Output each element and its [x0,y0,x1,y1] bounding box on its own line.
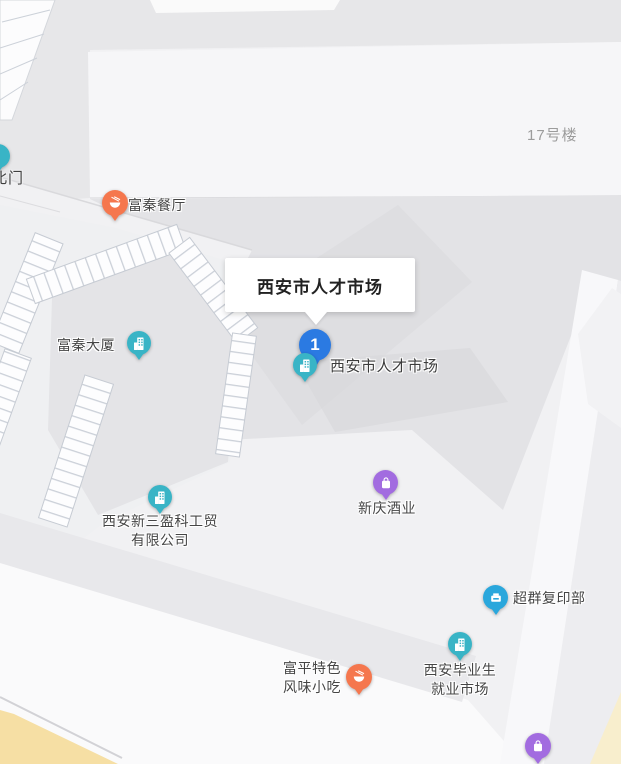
selected-result-label[interactable]: 西安市人才市场 [330,357,439,376]
building-pin-icon [448,632,472,656]
selected-poi-pin[interactable] [293,353,317,377]
shopping-bag-icon [379,476,393,490]
poi-label: 富秦大厦 [57,336,115,355]
copier-icon [489,591,503,605]
poi-label: 西安新三盈科工贸 有限公司 [95,512,225,550]
building-icon [132,336,146,350]
building-icon [153,490,167,504]
restaurant-pin-icon [346,664,372,690]
info-window-title: 西安市人才市场 [257,273,383,298]
map-canvas [0,0,621,764]
building-pin-icon [148,485,172,509]
shopping-pin-icon [373,470,398,495]
building-pin-icon [127,331,151,355]
poi-label-line1: 西安毕业生 [410,661,510,680]
poi-label: 超群复印部 [513,589,586,608]
poi-label-line1: 富平特色 [283,659,341,678]
poi-label: 富秦餐厅 [128,196,186,215]
building-icon [453,637,467,651]
poi-label-line2: 就业市场 [410,680,510,699]
info-window[interactable]: 西安市人才市场 [225,258,415,312]
area-label-building-17: 17号楼 [527,124,578,145]
poi-label-line2: 有限公司 [95,531,225,550]
selected-result-number: 1 [310,335,319,355]
area-label-north-gate: 北门 [0,167,24,188]
poi-label-line1: 西安新三盈科工贸 [95,512,225,531]
print-pin-icon [483,585,508,610]
shopping-pin-icon [525,733,551,759]
bowl-chopsticks-icon [352,670,366,684]
poi-label: 新庆酒业 [358,499,416,518]
poi-label: 富平特色 风味小吃 [283,659,341,697]
shopping-bag-icon [531,739,545,753]
building-icon [298,358,312,372]
map-viewport[interactable]: 17号楼 北门 富秦餐厅 富秦大厦 [0,0,621,764]
poi-label-line2: 风味小吃 [283,678,341,697]
bowl-chopsticks-icon [108,196,122,210]
poi-label: 西安毕业生 就业市场 [410,661,510,699]
restaurant-pin-icon [102,190,128,216]
